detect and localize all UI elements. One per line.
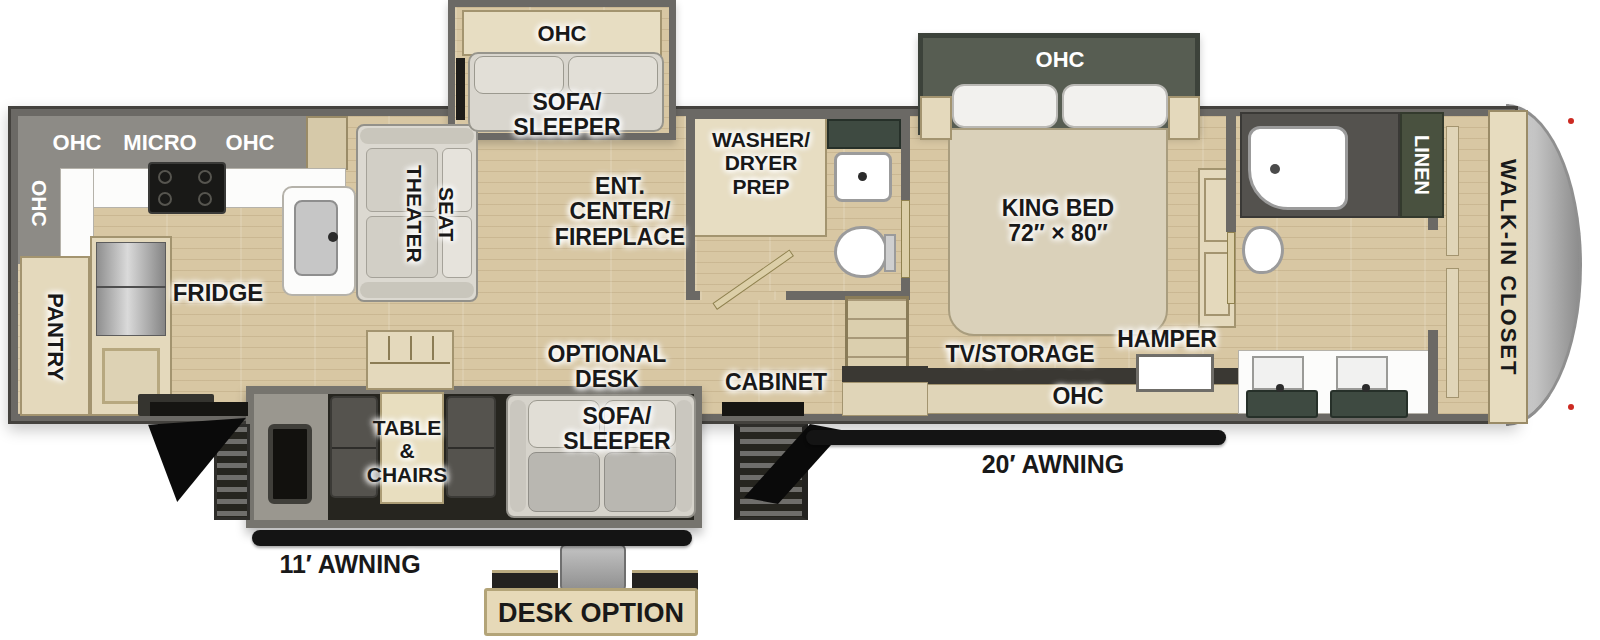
label-table-chairs: TABLE & CHAIRS bbox=[350, 396, 464, 506]
label-awning-20: 20′ AWNING bbox=[948, 448, 1158, 482]
hutch-shelf-divider bbox=[388, 336, 390, 360]
entry-cabinet-top bbox=[842, 366, 928, 382]
main-entry-opening bbox=[722, 402, 804, 416]
kitchen-counter-corner bbox=[60, 168, 94, 260]
label-awning-11: 11′ AWNING bbox=[240, 548, 460, 582]
mid-bath-pocket-door bbox=[901, 200, 910, 278]
entry-cabinet bbox=[842, 382, 928, 416]
label-sofa-slide: SOFA/ SLEEPER bbox=[492, 86, 642, 144]
vanity-sink-left bbox=[1246, 390, 1318, 418]
mid-bath-door-gap bbox=[700, 291, 786, 300]
cooktop-burner-icon bbox=[158, 192, 172, 206]
slide-end-window-icon bbox=[268, 424, 312, 504]
label-hamper: HAMPER bbox=[1106, 326, 1228, 354]
label-sofa-slide-ohc: OHC bbox=[512, 18, 612, 50]
cooktop bbox=[148, 162, 226, 214]
marker-light-top-icon bbox=[1568, 118, 1574, 124]
front-bath-pocket-door bbox=[1227, 232, 1235, 304]
kitchen-faucet-icon bbox=[328, 232, 338, 242]
label-tv-storage: TV/STORAGE bbox=[928, 340, 1112, 370]
cooktop-burner-icon bbox=[198, 192, 212, 206]
hamper-box bbox=[1136, 354, 1214, 392]
label-king-bed: KING BED 72″ × 80″ bbox=[970, 190, 1146, 252]
bed-pillow bbox=[1062, 84, 1168, 128]
hutch-shelf-divider bbox=[432, 336, 434, 360]
label-desk-option: DESK OPTION bbox=[492, 596, 690, 632]
dinette-hutch bbox=[366, 330, 454, 390]
marker-light-bottom-icon bbox=[1568, 404, 1574, 410]
label-pantry: PANTRY bbox=[22, 262, 88, 412]
label-cabinet: CABINET bbox=[714, 368, 838, 398]
floorplan-canvas: OHC OHC MICRO OHC PANTRY FRIDGE THEATER … bbox=[0, 0, 1600, 640]
shower-pan bbox=[1248, 126, 1348, 210]
label-theater-seat: THEATER SEAT bbox=[394, 146, 466, 282]
bed-pillow bbox=[952, 84, 1058, 128]
bath-closet-wall-bottom bbox=[1428, 330, 1438, 414]
label-micro: MICRO bbox=[112, 128, 208, 158]
label-ohc-top-right: OHC bbox=[212, 128, 288, 158]
hutch-shelf-divider bbox=[410, 336, 412, 360]
mid-bath-counter bbox=[827, 119, 901, 149]
nightstand-right bbox=[1168, 96, 1200, 140]
vanity-faucet-icon bbox=[1276, 384, 1284, 392]
hutch-shelf-line bbox=[370, 362, 450, 364]
label-sofa-sleeper-bottom: SOFA/ SLEEPER bbox=[534, 398, 700, 460]
label-bedroom-ohc-foot: OHC bbox=[1032, 382, 1124, 412]
cooktop-burner-icon bbox=[198, 170, 212, 184]
mid-bath-toilet-tank bbox=[884, 234, 896, 272]
label-fridge: FRIDGE bbox=[162, 276, 274, 310]
closet-shelf bbox=[1446, 126, 1459, 256]
label-optional-desk: OPTIONAL DESK bbox=[524, 338, 690, 396]
sofa-seat-cushion bbox=[528, 452, 600, 512]
theater-armrest bbox=[360, 128, 474, 144]
theater-armrest bbox=[360, 282, 474, 298]
kitchen-hood-cabinet bbox=[306, 116, 348, 170]
rear-entry-opening bbox=[150, 402, 248, 416]
desk-option-cabinet-left bbox=[492, 570, 558, 590]
label-entertainment: ENT. CENTER/ FIREPLACE bbox=[532, 164, 708, 260]
label-ohc-side: OHC bbox=[20, 160, 58, 246]
label-walk-in-closet: WALK-IN CLOSET bbox=[1490, 120, 1526, 416]
label-linen: LINEN bbox=[1404, 118, 1440, 212]
label-washer-dryer: WASHER/ DRYER PREP bbox=[698, 122, 824, 204]
label-ohc-top-left: OHC bbox=[42, 128, 112, 158]
sofa-armrest bbox=[510, 400, 526, 512]
awning-11-bar bbox=[252, 530, 692, 546]
awning-20-bar bbox=[806, 430, 1226, 445]
fridge-divider bbox=[96, 286, 166, 288]
label-bedroom-ohc: OHC bbox=[1010, 44, 1110, 76]
shower-drain-icon bbox=[1270, 164, 1280, 174]
bedroom-bath-wall bbox=[1226, 112, 1236, 232]
front-bath-toilet bbox=[1242, 226, 1284, 274]
fridge bbox=[96, 242, 166, 336]
sofa-seat-cushion bbox=[604, 452, 676, 512]
mid-bath-faucet-icon bbox=[858, 172, 867, 181]
sofa-slide-window-icon bbox=[456, 58, 465, 120]
desk-option-cabinet-right bbox=[632, 570, 698, 590]
vanity-sink-right bbox=[1330, 390, 1408, 418]
cooktop-burner-icon bbox=[158, 170, 172, 184]
closet-shelf bbox=[1446, 268, 1459, 398]
nightstand-left bbox=[920, 96, 952, 140]
vanity-faucet-icon bbox=[1362, 384, 1370, 392]
desk-option-chair bbox=[560, 544, 626, 592]
mid-bath-toilet bbox=[834, 226, 888, 278]
